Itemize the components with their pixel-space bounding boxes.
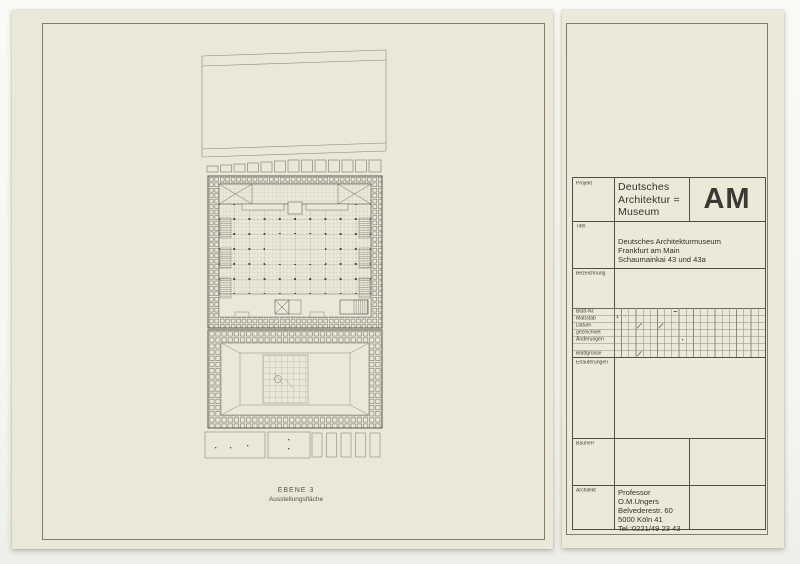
drawing-sheet: EBENE 3 Ausstellungsfläche	[12, 10, 553, 549]
tree-row	[207, 160, 381, 172]
am-logo-box: AM	[689, 178, 765, 221]
floor-plan-drawing	[190, 42, 400, 482]
architekt-label: Architekt	[576, 488, 596, 493]
caption-use: Ausstellungsfläche	[190, 496, 402, 503]
grid-row-label: Datum	[576, 323, 591, 328]
am-logo: AM	[703, 183, 750, 216]
divider	[573, 268, 765, 269]
architekt-value: Professor O.M.Ungers Belvederestr. 60 50…	[618, 488, 728, 533]
divider	[573, 357, 765, 358]
bezeichnung-label: Bezeichnung	[576, 271, 605, 276]
projekt-value: Deutsches Architektur = Museum	[618, 181, 688, 219]
erlaeuterungen-label: Erläuterungen	[576, 360, 608, 365]
entrance-vestibule	[288, 202, 302, 214]
grid-row-label: Blattgrösse	[576, 351, 602, 356]
divider	[573, 485, 765, 486]
grid-row-label: Maßstab	[576, 316, 596, 321]
grid-row-label: gezeichnet	[576, 330, 601, 335]
street-area	[202, 50, 386, 157]
skylight-band	[219, 184, 371, 204]
grid-row-label: Änderungen	[576, 337, 604, 342]
bauherr-label: Bauherr	[576, 441, 594, 446]
titel-label: Titel	[576, 224, 585, 229]
annex-row	[205, 432, 380, 458]
divider	[573, 221, 765, 222]
caption-level: EBENE 3	[190, 487, 402, 494]
garden-pavilion-grid	[263, 355, 308, 403]
titel-value: Deutsches Architekturmuseum Frankfurt am…	[618, 237, 763, 265]
courtyard	[208, 330, 382, 428]
projekt-label: Projekt	[576, 181, 592, 186]
revision-grid-marks	[614, 308, 765, 357]
main-building	[208, 176, 382, 328]
title-sheet: Projekt Deutsches Architektur = Museum A…	[562, 10, 784, 548]
exhibition-hall	[219, 202, 371, 294]
grid-row-label: Blatt-Nr.	[576, 309, 594, 314]
plan-caption: EBENE 3 Ausstellungsfläche	[190, 487, 402, 503]
divider	[573, 438, 765, 439]
title-block: Projekt Deutsches Architektur = Museum A…	[572, 177, 766, 530]
service-strip	[235, 300, 368, 317]
scan-background: EBENE 3 Ausstellungsfläche Projekt Deuts…	[0, 0, 800, 564]
